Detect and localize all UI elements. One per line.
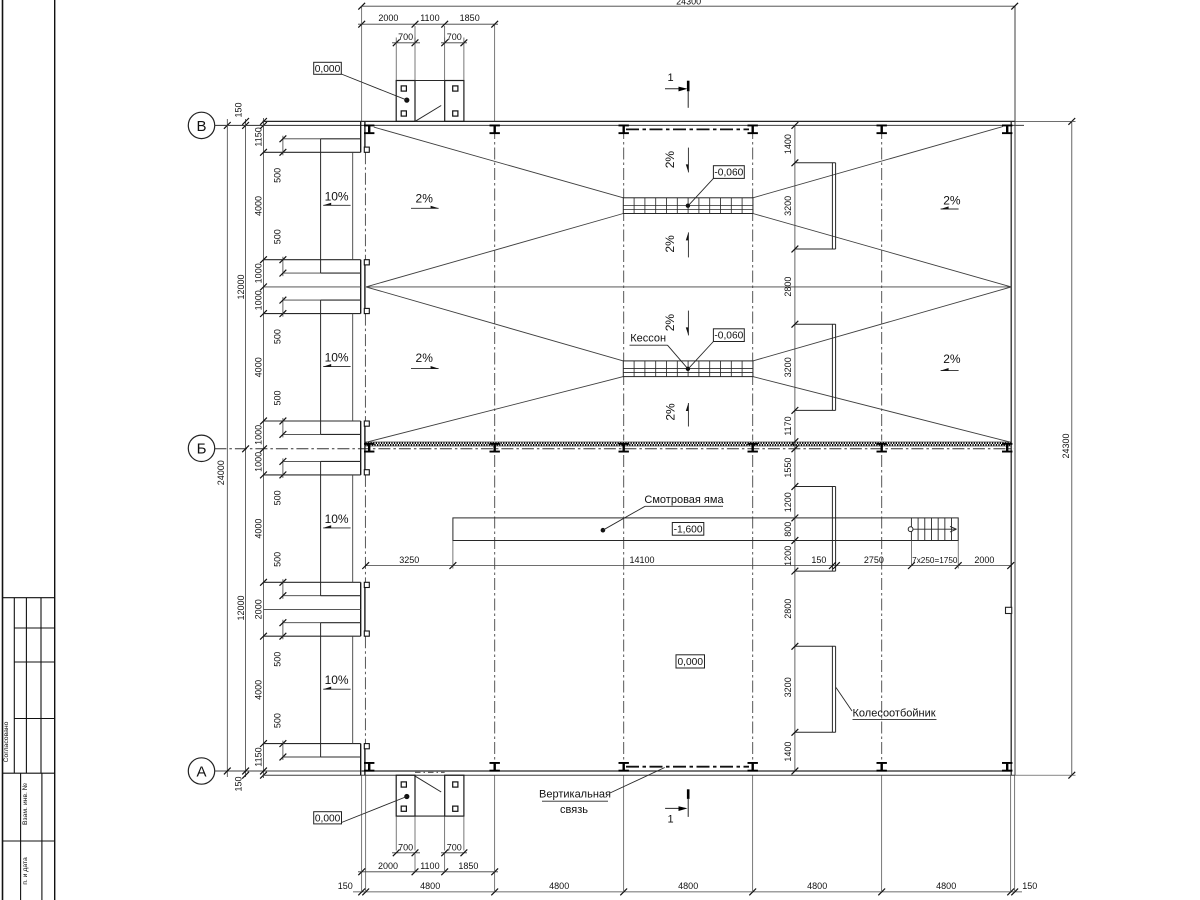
svg-text:2%: 2% bbox=[416, 192, 434, 206]
svg-text:500: 500 bbox=[273, 552, 283, 567]
svg-text:700: 700 bbox=[447, 842, 462, 852]
svg-text:150: 150 bbox=[233, 102, 243, 117]
svg-text:А: А bbox=[196, 763, 206, 780]
svg-text:2800: 2800 bbox=[783, 599, 793, 619]
svg-text:Вертикальная: Вертикальная bbox=[539, 789, 611, 801]
svg-text:3200: 3200 bbox=[783, 677, 793, 697]
svg-text:4800: 4800 bbox=[678, 881, 698, 891]
svg-text:1400: 1400 bbox=[783, 134, 793, 154]
svg-text:4800: 4800 bbox=[549, 881, 569, 891]
svg-text:1400: 1400 bbox=[783, 742, 793, 762]
svg-text:В: В bbox=[196, 118, 206, 135]
svg-text:24300: 24300 bbox=[676, 0, 701, 7]
svg-text:10%: 10% bbox=[325, 673, 349, 687]
svg-text:800: 800 bbox=[783, 522, 793, 537]
svg-text:0,000: 0,000 bbox=[315, 64, 341, 75]
svg-text:1: 1 bbox=[667, 72, 673, 84]
svg-text:10%: 10% bbox=[325, 351, 349, 365]
svg-text:1550: 1550 bbox=[783, 458, 793, 478]
svg-text:1850: 1850 bbox=[460, 13, 480, 23]
svg-text:2%: 2% bbox=[663, 151, 677, 169]
svg-text:3200: 3200 bbox=[783, 196, 793, 216]
svg-text:Б: Б bbox=[197, 441, 207, 458]
svg-text:150: 150 bbox=[811, 555, 826, 565]
svg-text:700: 700 bbox=[398, 842, 413, 852]
svg-text:10%: 10% bbox=[325, 512, 349, 526]
svg-text:500: 500 bbox=[273, 229, 283, 244]
svg-text:4800: 4800 bbox=[936, 881, 956, 891]
svg-text:2%: 2% bbox=[943, 194, 961, 208]
svg-text:связь: связь bbox=[560, 804, 588, 816]
svg-text:1200: 1200 bbox=[783, 492, 793, 512]
svg-text:4000: 4000 bbox=[253, 519, 263, 539]
svg-text:0,000: 0,000 bbox=[678, 657, 704, 668]
svg-text:24300: 24300 bbox=[1061, 433, 1071, 458]
svg-text:500: 500 bbox=[273, 168, 283, 183]
svg-text:500: 500 bbox=[273, 329, 283, 344]
svg-text:14100: 14100 bbox=[629, 555, 654, 565]
svg-text:2000: 2000 bbox=[974, 555, 994, 565]
svg-text:3250: 3250 bbox=[399, 555, 419, 565]
svg-text:1000: 1000 bbox=[253, 452, 263, 472]
svg-text:2000: 2000 bbox=[378, 13, 398, 23]
svg-text:-0,060: -0,060 bbox=[714, 331, 743, 342]
svg-text:2750: 2750 bbox=[864, 555, 884, 565]
svg-text:2800: 2800 bbox=[783, 277, 793, 297]
svg-text:700: 700 bbox=[398, 32, 413, 42]
svg-text:Кессон: Кессон bbox=[630, 333, 666, 345]
svg-text:-1,600: -1,600 bbox=[674, 524, 703, 535]
svg-text:500: 500 bbox=[273, 713, 283, 728]
svg-text:Взам. инв. №: Взам. инв. № bbox=[22, 783, 29, 825]
svg-text:4000: 4000 bbox=[253, 357, 263, 377]
svg-text:150: 150 bbox=[338, 881, 353, 891]
svg-text:1100: 1100 bbox=[420, 861, 439, 871]
svg-text:150: 150 bbox=[1022, 881, 1037, 891]
svg-text:2%: 2% bbox=[663, 314, 677, 332]
svg-text:4800: 4800 bbox=[807, 881, 827, 891]
svg-text:4000: 4000 bbox=[253, 196, 263, 216]
svg-text:1000: 1000 bbox=[253, 263, 263, 283]
svg-text:1100: 1100 bbox=[420, 13, 439, 23]
svg-text:12000: 12000 bbox=[236, 274, 246, 299]
svg-text:500: 500 bbox=[273, 652, 283, 667]
svg-text:1: 1 bbox=[667, 814, 673, 826]
svg-text:0,000: 0,000 bbox=[315, 813, 341, 824]
svg-text:10%: 10% bbox=[325, 189, 349, 203]
svg-text:4800: 4800 bbox=[420, 881, 440, 891]
svg-text:1000: 1000 bbox=[253, 290, 263, 310]
svg-text:7х250=1750: 7х250=1750 bbox=[912, 556, 958, 565]
svg-text:2000: 2000 bbox=[378, 861, 398, 871]
svg-text:3200: 3200 bbox=[783, 357, 793, 377]
svg-text:1170: 1170 bbox=[783, 416, 793, 435]
svg-text:1150: 1150 bbox=[253, 127, 263, 146]
svg-text:2%: 2% bbox=[663, 235, 677, 253]
svg-text:Согласовано: Согласовано bbox=[3, 721, 10, 762]
svg-text:2%: 2% bbox=[943, 352, 961, 366]
svg-text:700: 700 bbox=[447, 32, 462, 42]
svg-text:1850: 1850 bbox=[458, 861, 478, 871]
svg-text:1000: 1000 bbox=[253, 425, 263, 445]
svg-text:24000: 24000 bbox=[216, 460, 226, 485]
svg-text:1200: 1200 bbox=[783, 546, 793, 566]
svg-text:12000: 12000 bbox=[236, 595, 246, 620]
svg-text:2%: 2% bbox=[416, 351, 434, 365]
svg-text:2000: 2000 bbox=[253, 599, 263, 619]
svg-text:1150: 1150 bbox=[253, 747, 263, 766]
svg-text:4000: 4000 bbox=[253, 680, 263, 700]
svg-text:500: 500 bbox=[273, 490, 283, 505]
svg-text:150: 150 bbox=[233, 776, 243, 791]
svg-text:Колесоотбойник: Колесоотбойник bbox=[853, 707, 936, 719]
svg-text:Смотровая яма: Смотровая яма bbox=[644, 494, 724, 506]
svg-text:п. и дата: п. и дата bbox=[22, 857, 29, 885]
svg-text:2%: 2% bbox=[663, 403, 677, 421]
svg-text:500: 500 bbox=[273, 390, 283, 405]
svg-text:-0,060: -0,060 bbox=[714, 168, 743, 179]
